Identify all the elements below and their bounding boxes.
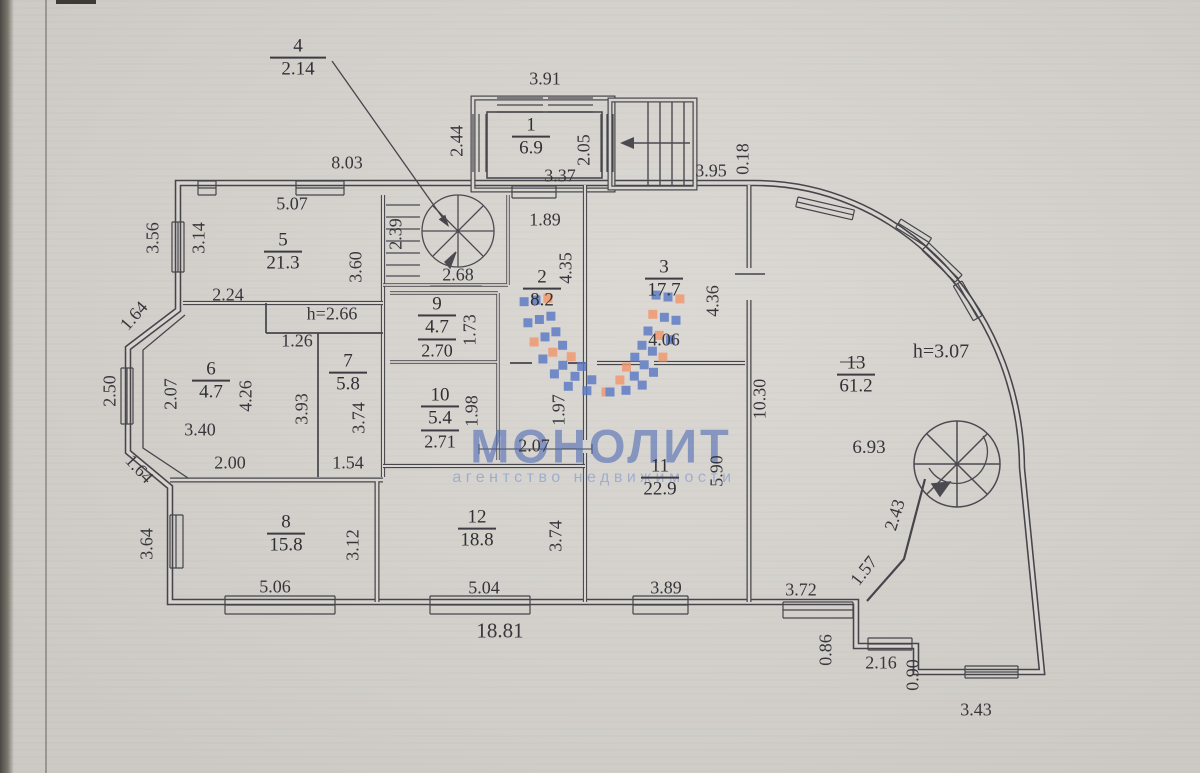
room-area: 5.8 [336,375,360,394]
room-number: 11 [651,457,669,476]
dimension-label: 3.14 [189,222,210,254]
logo-square [638,341,647,350]
room-number: 3 [659,258,669,277]
dimension-label: 2.16 [865,653,897,674]
stair-annex-walls [610,100,695,188]
floorplan-photo: МОНОЛИТ агентство недвижимости 4 2.14 8.… [0,0,1200,773]
room-area: 15.8 [269,536,302,555]
room-label-6: 64.7 [192,360,230,403]
dimension-label: 3.93 [292,393,313,425]
room-number: 1 [526,116,536,135]
dimension-label: 2.07 [161,378,182,410]
dimension-label: 2.68 [442,265,474,286]
dimension-label: 2.50 [100,375,121,407]
room-label-2: 28.2 [523,268,561,311]
room-label-10: 105.42.71 [421,385,459,450]
logo-square [558,341,567,350]
logo-square [672,316,681,325]
dimension-label: 3.37 [544,166,576,187]
logo-square [587,375,596,384]
logo-square [660,313,669,322]
room-area: 2.70 [421,341,453,359]
room-area: 8.2 [530,291,554,310]
logo-square [571,372,580,381]
logo-square [648,310,657,319]
dimension-label: 3.60 [346,251,367,283]
dimension-label: 3.74 [546,520,567,552]
watermark-brand: МОНОЛИТ [470,419,732,474]
dimension-label: 3.43 [960,700,992,721]
scan-edge-shadow [0,0,14,773]
dimension-label: 8.03 [331,153,363,174]
annotation-leader [332,61,449,227]
room-number: 6 [206,360,216,379]
room-number: 12 [468,508,487,527]
room-label-7: 75.8 [329,352,367,395]
room-label-8: 815.8 [267,513,305,556]
room-area: 4.7 [425,318,449,337]
room-area: 21.3 [266,254,299,273]
interior-walls [143,185,925,602]
logo-square [658,353,667,362]
dimension-label: 3.91 [529,69,561,90]
room-label-11: 1122.9 [641,457,679,500]
dimension-label: 6.93 [852,437,885,459]
dimension-label: 1.73 [460,314,481,346]
logo-square [535,315,544,324]
dimension-label: h=2.66 [307,304,358,325]
logo-square [649,368,658,377]
dimension-label: 10.30 [750,379,771,420]
dimension-label: 0.18 [733,143,754,175]
logo-square [523,318,532,327]
room-area: 61.2 [839,377,872,396]
dimension-label: 2.05 [574,134,595,166]
room-label-9: 94.72.70 [418,294,456,359]
dimension-label: 0.86 [816,634,837,666]
logo-square [541,332,550,341]
stair-direction-arrow [620,137,634,149]
room-label-3: 317.7 [645,258,683,301]
dimension-label: 5.06 [259,577,291,598]
dimension-label: 2.44 [447,125,468,157]
room-area: 5.4 [428,409,452,428]
logo-square [567,352,576,361]
annotation-value: 2.14 [281,60,314,79]
room-number: 13 [847,354,866,373]
dimension-label: 3.64 [137,528,158,560]
watermark-tagline: агентство недвижимости [452,469,735,487]
dimension-label: 3.95 [695,161,727,182]
room-area: 2.71 [424,432,456,450]
logo-square [538,355,547,364]
room-label-1: 16.9 [512,116,550,159]
dimension-label: 1.89 [529,210,561,231]
logo-square [622,386,631,395]
dimension-label: 0.90 [903,659,924,691]
room-number: 8 [281,513,291,532]
logo-square [630,353,639,362]
room-area: 17.7 [647,281,680,300]
annotation-number: 4 [293,37,303,56]
dimension-label: 5.90 [707,455,728,487]
room-area: 22.9 [643,480,676,499]
dimension-label: 3.12 [343,529,364,561]
logo-square [630,372,639,381]
scan-fold-line [45,0,47,773]
dimension-label: 3.74 [349,402,370,434]
room-number: 2 [537,268,547,287]
logo-square [546,312,555,321]
dimension-label: 2.39 [386,218,407,250]
annotation-room4: 4 2.14 [270,37,326,80]
dimension-label: 5.04 [468,578,500,599]
logo-square [564,382,573,391]
dimension-label: 3.40 [184,420,216,441]
room-number: 10 [431,385,450,404]
logo-square [622,363,631,372]
room-area: 4.7 [199,383,223,402]
dimension-label: 5.07 [276,194,308,215]
logo-square [530,338,539,347]
dimension-label: 4.26 [236,380,257,412]
room-number: 5 [278,231,288,250]
dimension-label: 4.06 [648,330,680,351]
dimension-label: 1.98 [462,395,483,427]
logo-square [606,388,615,397]
dimension-label: 4.36 [703,285,724,317]
dimension-label: 2.00 [214,453,246,474]
logo-square [558,361,567,370]
dimension-label: 1.26 [281,331,313,352]
room-area: 6.9 [519,139,543,158]
dimension-label: 1.97 [549,394,570,426]
dimension-label: 3.72 [785,580,817,601]
logo-square [577,362,586,371]
room-number: 9 [432,294,442,313]
logo-square [548,348,557,357]
spiral-staircase-bottom [914,421,1000,507]
dimension-label: h=3.07 [913,341,969,364]
logo-square [615,376,624,385]
room-label-13: 1361.2 [837,354,875,397]
dimension-label: 3.89 [650,578,682,599]
room-number: 7 [343,352,353,371]
logo-square [640,360,649,369]
dimension-label: 2.24 [212,285,244,306]
dimension-label: 2.07 [518,436,550,457]
dimension-label: 18.81 [476,619,523,644]
logo-square [551,327,560,336]
room-label-5: 521.3 [264,231,302,274]
room-area: 18.8 [460,531,493,550]
logo-square [638,381,647,390]
dimension-label: 1.54 [332,453,364,474]
scan-artifact [56,0,96,4]
logo-square [582,386,591,395]
room-label-12: 1218.8 [458,508,496,551]
dimension-label: 3.56 [143,222,164,254]
logo-square [550,369,559,378]
